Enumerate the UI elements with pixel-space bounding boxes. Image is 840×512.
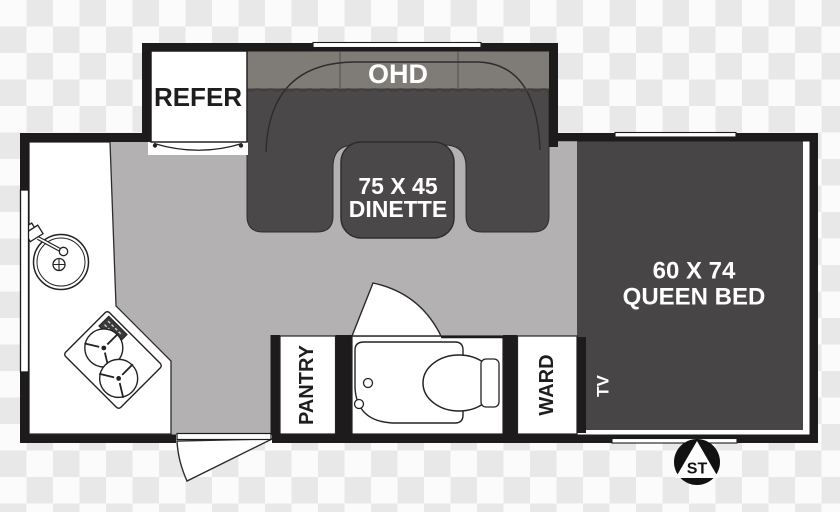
wall-bottom-left: [20, 435, 176, 444]
st-logo-label: ST: [687, 461, 708, 478]
window-bed-top: [615, 133, 736, 138]
wall-bath-ward: [503, 335, 518, 435]
window-left: [21, 190, 29, 372]
refrigerator-hinge-dot: [153, 143, 157, 147]
wall-top-left: [20, 133, 151, 142]
window-bed-bottom: [612, 439, 737, 444]
wall-slideout-left: [142, 43, 151, 142]
ohd-label: OHD: [368, 59, 428, 89]
wall-right: [810, 133, 819, 443]
toilet-icon: [423, 355, 499, 411]
entry-door-swing-icon: [177, 439, 272, 481]
queen-bed-label: QUEEN BED: [623, 284, 766, 311]
floorplan-canvas: REFER OHD 75 X 45 DINETTE 60 X 74 QUEEN …: [0, 0, 840, 512]
refer-label: REFER: [154, 82, 242, 112]
dinette-label: DINETTE: [349, 196, 447, 222]
window-slideout-top: [313, 43, 481, 48]
pantry-label: PANTRY: [296, 344, 318, 425]
wall-left-of-pantry: [271, 335, 281, 435]
wall-slideout-right: [549, 43, 558, 147]
wall-pantry-bath: [336, 335, 353, 435]
floorplan-drawing: REFER OHD 75 X 45 DINETTE 60 X 74 QUEEN …: [0, 0, 840, 512]
refrigerator-hinge-dot: [239, 143, 243, 147]
ward-label: WARD: [536, 354, 558, 415]
bed-size-label: 60 X 74: [653, 258, 736, 285]
tv-label: TV: [594, 374, 613, 396]
st-logo: ST: [674, 439, 720, 485]
refrigerator-door-area: [148, 142, 248, 155]
tv-unit: [577, 337, 586, 433]
entry-door-leaf: [177, 434, 271, 440]
